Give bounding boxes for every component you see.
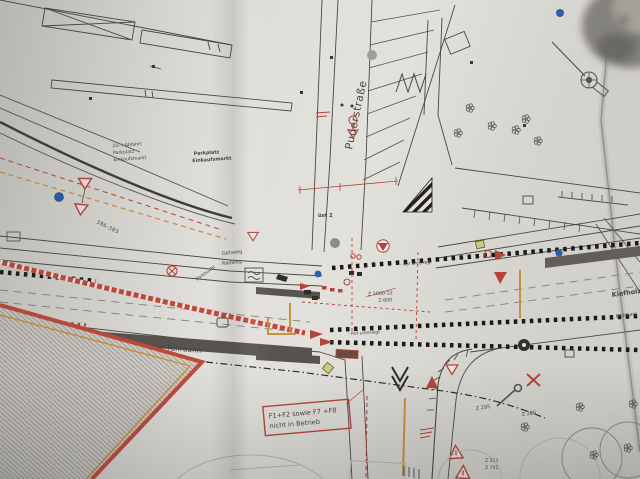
dark-signal-box [336, 349, 358, 358]
blue-circle-sign-icon [55, 193, 64, 202]
target-circle-icon [518, 339, 530, 351]
blue-circle-sign-icon [555, 249, 562, 256]
paper-smudge [367, 50, 377, 60]
photo-of-traffic-plan: 386-383 Zu- / Abfahrt Parkplatz Einkaufs… [0, 0, 640, 479]
uest-label: üst 2 [318, 213, 333, 219]
blue-circle-sign-icon [315, 271, 322, 278]
green-sign-icon [475, 240, 484, 249]
blue-circle-sign-icon [556, 9, 564, 17]
yield-sign-with-circle-icon [377, 240, 389, 252]
sign-z741-label: Z 741 [485, 465, 498, 471]
plan-drawing: 386-383 Zu- / Abfahrt Parkplatz Einkaufs… [0, 0, 640, 479]
sign-z600-label: Z 600 [378, 297, 392, 304]
